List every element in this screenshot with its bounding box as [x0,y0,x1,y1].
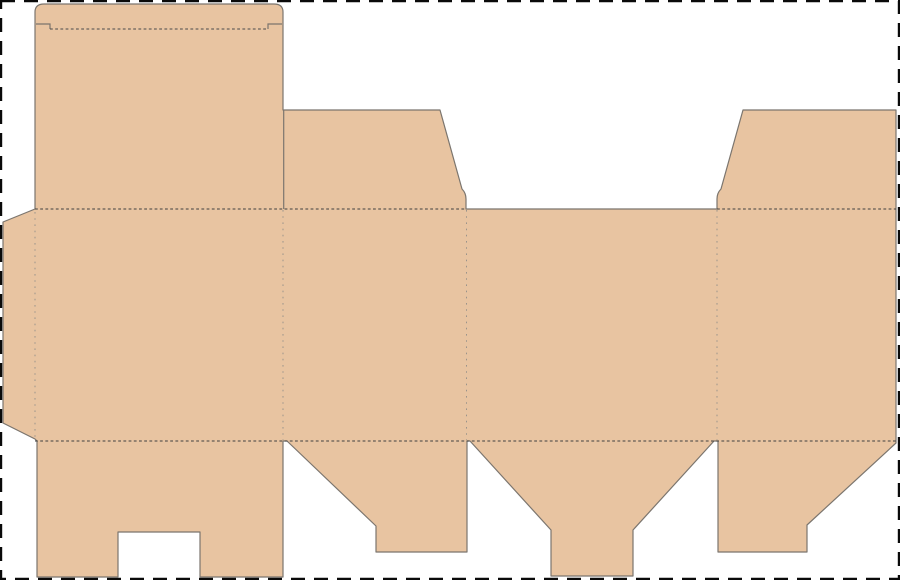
artboard [0,0,900,580]
carton-dieline-drawing [0,0,900,580]
